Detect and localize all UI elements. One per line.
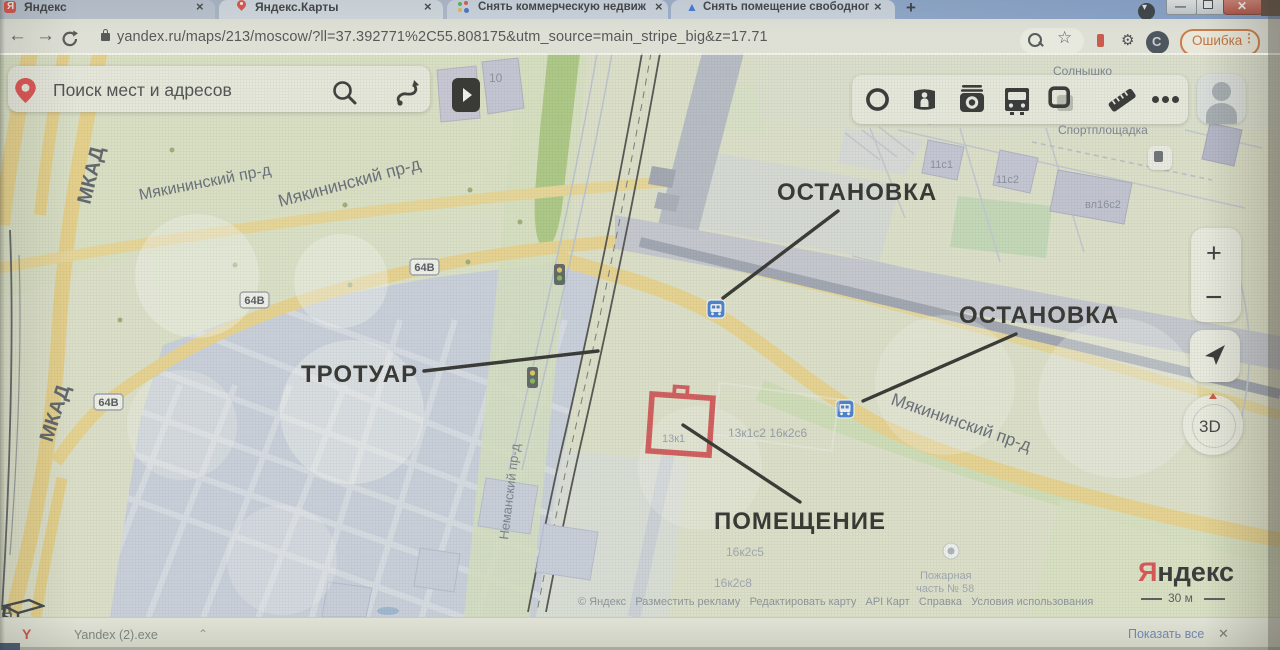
svg-text:ТРОТУАР: ТРОТУАР [301, 361, 418, 388]
svg-text:13к1: 13к1 [662, 433, 685, 445]
svg-text:ОСТАНОВКА: ОСТАНОВКА [959, 302, 1119, 329]
svg-text:Спортплощадка: Спортплощадка [1058, 123, 1148, 137]
svg-text:ОСТАНОВКА: ОСТАНОВКА [777, 179, 937, 206]
svg-text:10: 10 [489, 71, 503, 85]
svg-text:16к2с8: 16к2с8 [714, 576, 752, 590]
svg-text:16к2с5: 16к2с5 [726, 545, 764, 559]
svg-text:вл16с2: вл16с2 [1085, 199, 1121, 211]
svg-text:11с1: 11с1 [930, 159, 953, 171]
svg-text:64В: 64В [98, 397, 118, 409]
svg-text:часть № 58: часть № 58 [916, 583, 974, 595]
svg-text:ПОМЕЩЕНИЕ: ПОМЕЩЕНИЕ [714, 508, 886, 535]
svg-text:64В: 64В [414, 262, 434, 274]
svg-text:64В: 64В [244, 295, 264, 307]
svg-text:11с2: 11с2 [996, 174, 1019, 186]
svg-text:Пожарная: Пожарная [920, 570, 972, 582]
